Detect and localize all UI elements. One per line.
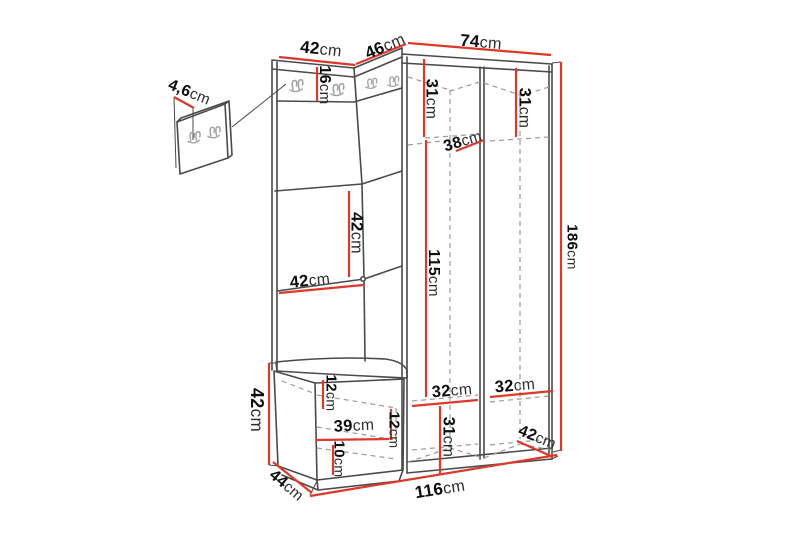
furniture-line-drawing [0, 0, 800, 533]
dim-label-left-middle-compartment-height: 42cm [348, 212, 365, 254]
wall-hook-panel-detail [177, 101, 232, 174]
dim-label-bottom-left-compartment-width: 32cm [431, 381, 473, 401]
dim-label-right-section-width: 74cm [460, 32, 503, 53]
dim-label-bottom-compartment-height: 31cm [440, 417, 457, 457]
dim-label-bottom-right-compartment-width: 32cm [494, 376, 536, 396]
dim-label-hanging-space-height: 115cm [425, 249, 441, 297]
wardrobe-outline [272, 48, 552, 490]
dim-label-bench-top-compartment-height: 12cm [323, 375, 338, 412]
dim-label-bench-height: 42cm [248, 388, 266, 432]
dim-label-right-left-top-compartment-height: 31cm [423, 79, 440, 119]
furniture-dimension-diagram: 4,6cm 42cm 46cm 74cm 16cm 42cm 42cm 31cm… [0, 0, 800, 533]
dim-label-total-height: 186cm [564, 224, 579, 270]
dim-label-right-right-top-compartment-height: 31cm [516, 88, 533, 128]
bench-cushion [276, 358, 407, 378]
hook-icon [290, 80, 303, 92]
leader-line [232, 84, 286, 127]
hook-icon [208, 127, 220, 138]
hook-icon [388, 76, 399, 86]
bench-left-face [274, 371, 317, 480]
dim-label-hook-panel-height: 16cm [316, 65, 332, 104]
dim-label-bench-compartment-width: 39cm [333, 417, 374, 436]
dim-label-bench-bottom-compartment-height: 10cm [331, 441, 346, 478]
coat-hooks [188, 76, 399, 142]
hook-icon [188, 132, 200, 143]
hook-icon [366, 78, 377, 88]
dim-label-bench-middle-compartment-height: 12cm [386, 412, 401, 449]
dim-label-left-section-width: 42cm [299, 38, 342, 59]
